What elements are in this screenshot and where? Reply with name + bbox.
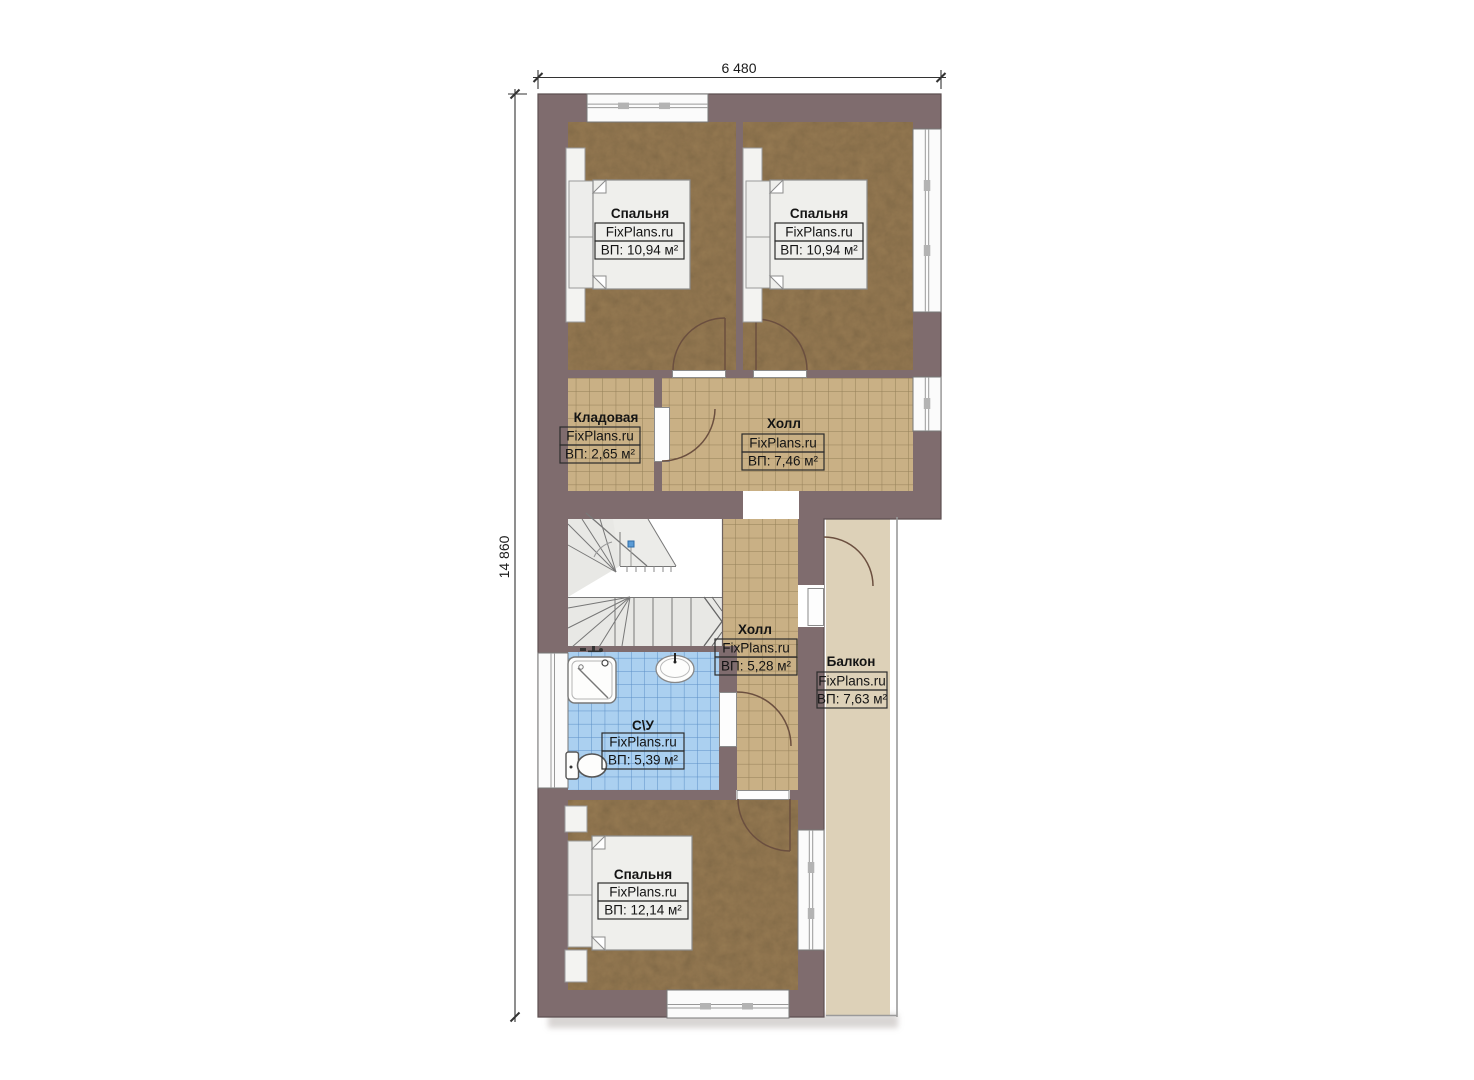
svg-text:ВП: 7,46 м²: ВП: 7,46 м² [748,454,819,469]
svg-text:Спальня: Спальня [790,206,848,221]
svg-text:ВП: 10,94 м²: ВП: 10,94 м² [601,243,679,258]
svg-text:Кладовая: Кладовая [574,410,639,425]
svg-text:ВП: 5,28 м²: ВП: 5,28 м² [721,659,792,674]
svg-text:Спальня: Спальня [614,867,672,882]
svg-text:FixPlans.ru: FixPlans.ru [722,641,790,656]
svg-text:FixPlans.ru: FixPlans.ru [609,885,677,900]
svg-text:Холл: Холл [767,416,801,431]
svg-text:14 860: 14 860 [496,535,512,578]
svg-text:Холл: Холл [738,622,772,637]
svg-text:ВП: 12,14 м²: ВП: 12,14 м² [604,903,682,918]
svg-text:FixPlans.ru: FixPlans.ru [749,436,817,451]
svg-text:С\У: С\У [632,718,655,733]
svg-text:ВП: 10,94 м²: ВП: 10,94 м² [780,243,858,258]
svg-text:FixPlans.ru: FixPlans.ru [785,225,853,240]
svg-text:Спальня: Спальня [611,206,669,221]
svg-text:FixPlans.ru: FixPlans.ru [609,735,677,750]
svg-text:FixPlans.ru: FixPlans.ru [818,674,886,689]
svg-text:ВП: 5,39 м²: ВП: 5,39 м² [608,753,679,768]
svg-text:FixPlans.ru: FixPlans.ru [606,225,674,240]
svg-text:FixPlans.ru: FixPlans.ru [566,429,634,444]
svg-text:ВП: 7,63 м²: ВП: 7,63 м² [817,692,888,707]
svg-text:6 480: 6 480 [721,60,756,76]
svg-text:ВП: 2,65 м²: ВП: 2,65 м² [565,447,636,462]
svg-text:Балкон: Балкон [827,654,876,669]
